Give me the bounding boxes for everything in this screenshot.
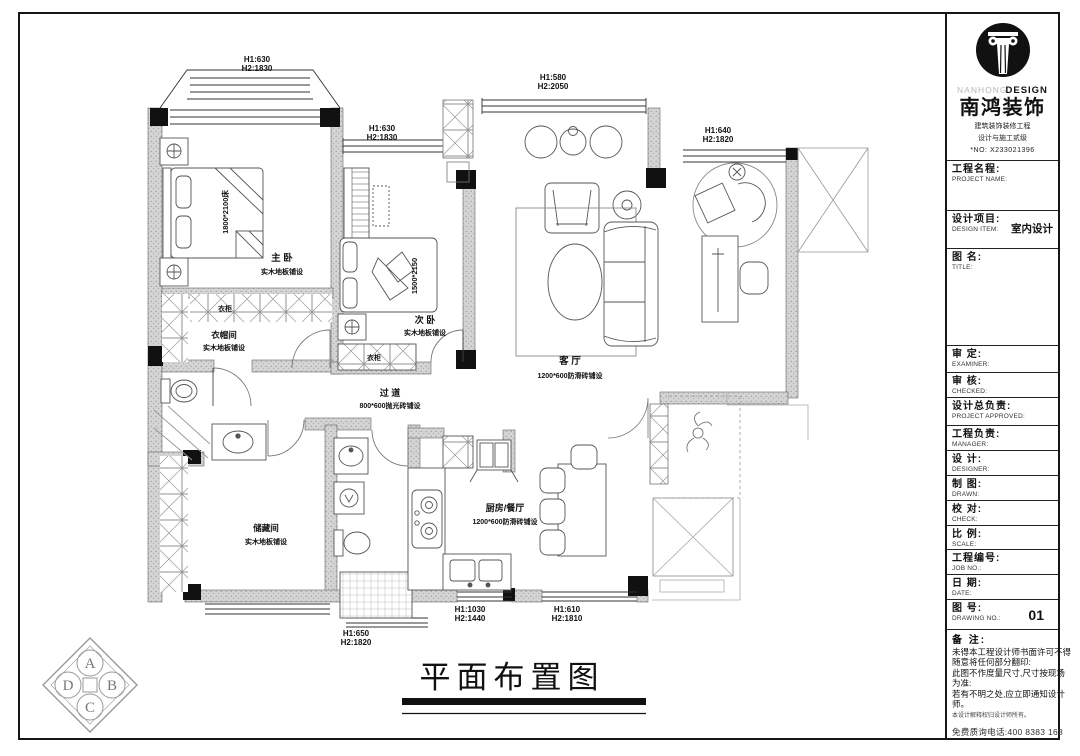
svg-text:H2:1820: H2:1820 <box>703 135 734 144</box>
field-job-no: 工程编号: JOB NO.: <box>947 549 1058 574</box>
field-design-item: 设计项目: DESIGN ITEM: 室内设计 <box>947 210 1058 248</box>
company-logo-section: NANHONGDESIGN 南鸿装饰 建筑装饰装修工程 设计与施工贰级 *NO:… <box>947 14 1058 160</box>
brand-en: NANHONGDESIGN <box>957 84 1048 96</box>
field-checked: 审 核: CHECKED: <box>947 372 1058 397</box>
svg-text:实木地板铺设: 实木地板铺设 <box>261 267 304 276</box>
svg-text:H1:630: H1:630 <box>369 124 396 133</box>
elevation-compass: A B C D <box>43 638 137 732</box>
field-manager: 工程负责: MANAGER: <box>947 425 1058 450</box>
storage-door <box>268 420 304 456</box>
svg-text:1200*600防滑砖铺设: 1200*600防滑砖铺设 <box>473 517 539 526</box>
brand-en-bold: DESIGN <box>1006 85 1048 96</box>
exterior-platform <box>798 148 868 252</box>
design-item-value: 室内设计 <box>1011 221 1053 236</box>
second-bedroom <box>338 168 463 370</box>
svg-text:H2:2050: H2:2050 <box>538 82 569 91</box>
field-designer: 设 计: DESIGNER: <box>947 450 1058 475</box>
field-date: 日 期: DATE: <box>947 574 1058 599</box>
bathroom-left <box>154 368 266 460</box>
drawing-title: 平面布置图 <box>402 660 646 714</box>
svg-text:储藏间: 储藏间 <box>252 523 279 533</box>
master-bed-size-label: 1800*2100床 <box>220 190 230 234</box>
svg-text:实木地板铺设: 实木地板铺设 <box>203 343 246 352</box>
wardrobe-label-1: 衣柜 <box>218 304 232 313</box>
svg-text:衣帽间: 衣帽间 <box>211 330 237 340</box>
svg-text:过 道: 过 道 <box>380 387 401 398</box>
master-bed <box>160 138 263 286</box>
study <box>693 163 777 322</box>
svg-text:次 卧: 次 卧 <box>415 314 436 325</box>
field-drawn: 制 图: DRAWN: <box>947 475 1058 500</box>
svg-text:1200*600防滑砖铺设: 1200*600防滑砖铺设 <box>538 371 604 380</box>
compass-c: C <box>85 700 95 716</box>
brand-cn: 南鸿装饰 <box>960 96 1046 120</box>
svg-text:H2:1440: H2:1440 <box>455 614 486 623</box>
second-bed-size-label: 1500*2150 <box>410 258 419 294</box>
field-title: 图 名: TITLE: <box>947 248 1058 346</box>
svg-text:主 卧: 主 卧 <box>271 252 293 264</box>
living-room <box>516 126 658 356</box>
svg-text:800*600抛光砖铺设: 800*600抛光砖铺设 <box>359 401 421 410</box>
compass-d: D <box>63 678 74 694</box>
company-logo-icon <box>973 22 1033 82</box>
floor-plan-svg: 1800*2100床 衣柜 <box>0 0 1080 756</box>
title-block: NANHONGDESIGN 南鸿装饰 建筑装饰装修工程 设计与施工贰级 *NO:… <box>945 14 1058 738</box>
svg-text:实木地板铺设: 实木地板铺设 <box>404 328 447 337</box>
field-examiner: 审 定: EXAMINER: <box>947 345 1058 372</box>
brand-en-light: NANHONG <box>957 85 1007 95</box>
field-check: 校 对: CHECK: <box>947 500 1058 525</box>
compass-a: A <box>85 656 96 672</box>
copyright-fine-print: 本设计解释权归设计师所有。 <box>952 712 1053 721</box>
compass-b: B <box>107 678 117 694</box>
drawing-sheet: 1800*2100床 衣柜 <box>0 0 1080 756</box>
svg-text:H1:640: H1:640 <box>705 126 732 135</box>
svg-text:实木地板铺设: 实木地板铺设 <box>245 537 288 546</box>
svg-text:H1:1030: H1:1030 <box>455 605 486 614</box>
field-scale: 比 例: SCALE: <box>947 525 1058 549</box>
drawing-title-text: 平面布置图 <box>420 660 605 695</box>
brand-license-no: *NO: X233021396 <box>970 147 1034 154</box>
notes-section: 备 注: 未得本工程设计师书面许可不得 随意将任何部分翻印: 此图不作度量尺寸,… <box>947 629 1058 738</box>
wardrobe-label-2: 衣柜 <box>367 353 381 362</box>
svg-text:H1:630: H1:630 <box>244 55 271 64</box>
bathroom-middle <box>334 430 412 618</box>
svg-text:H1:650: H1:650 <box>343 629 370 638</box>
svg-text:H1:610: H1:610 <box>554 605 581 614</box>
svg-text:客 厅: 客 厅 <box>558 355 581 367</box>
field-drawing-no: 图 号: DRAWING NO.: 01 <box>947 599 1058 629</box>
svg-text:H2:1810: H2:1810 <box>552 614 583 623</box>
brand-sub2: 设计与施工贰级 <box>978 134 1027 144</box>
svg-text:厨房/餐厅: 厨房/餐厅 <box>486 502 525 513</box>
kitchen-dining <box>408 436 606 590</box>
svg-text:H1:580: H1:580 <box>540 73 567 82</box>
hotline-phone: 免费质询电话:400 8383 168 <box>952 726 1053 738</box>
field-project-approved: 设计总负责: PROJECT APPROVED: <box>947 397 1058 425</box>
svg-text:H2:1820: H2:1820 <box>341 638 372 647</box>
svg-text:H2:1830: H2:1830 <box>367 133 398 142</box>
svg-text:H2:1830: H2:1830 <box>242 64 273 73</box>
brand-sub1: 建筑装饰装修工程 <box>975 122 1031 132</box>
drawing-no-value: 01 <box>1028 607 1044 623</box>
field-project-name: 工程名程: PROJECT NAME: <box>947 160 1058 210</box>
